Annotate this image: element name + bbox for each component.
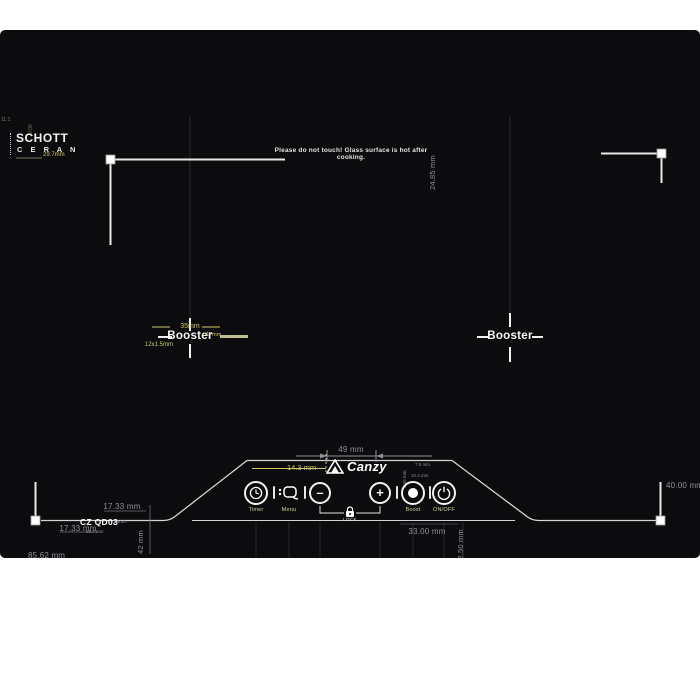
- dim-bottom-left-edge: 85.62 mm: [28, 551, 86, 558]
- schott-logo-bar: [10, 133, 11, 155]
- boost-dot-icon: [408, 488, 418, 498]
- edge-dim-fragment: 11.1: [1, 117, 10, 123]
- right-burner-tick-top: [509, 313, 511, 327]
- warning-text: Please do not touch! Glass surface is ho…: [262, 147, 440, 161]
- edge-dim-fragment-vertical: 0.00: [28, 107, 34, 134]
- dim-model-side-tiny: 3.5mm: [113, 519, 127, 524]
- menu-button: [277, 483, 301, 508]
- clock-icon: [248, 485, 264, 501]
- separator-2: [304, 486, 306, 499]
- dim-bottom-right-horizontal: 40.00 mm: [666, 481, 700, 490]
- dim-burner-coil: 12x1.5mm: [145, 342, 173, 348]
- lock-indicator: [344, 505, 356, 517]
- menu-pan-icon: [277, 483, 301, 503]
- dim-panel-tiny-1: 7.5 mm: [415, 462, 430, 467]
- menu-label: Menu: [274, 507, 304, 513]
- minus-symbol: –: [316, 485, 323, 500]
- power-icon: [436, 485, 452, 501]
- lock-label: LOCK: [340, 517, 360, 522]
- dim-top-right-vertical: 24.85 mm: [428, 115, 437, 190]
- timer-label: Timer: [241, 507, 271, 513]
- boost-label: Boost: [398, 507, 428, 513]
- dim-burner-right: 17mm: [206, 332, 221, 338]
- brand-name: Canzy: [347, 459, 387, 474]
- separator-4: [429, 486, 431, 499]
- right-burner-tick-right: [532, 336, 543, 338]
- right-burner-tick-bottom: [509, 347, 511, 362]
- dim-burner-width: 35mm: [173, 323, 207, 330]
- dim-model-under-tiny: 28.4 mm: [86, 529, 104, 534]
- dim-logo-width: 49 mm: [330, 445, 372, 454]
- technical-drawing-canvas: 11.1 0.00 SCHOTT C E R A N 29.7mm Please…: [0, 0, 700, 700]
- dim-panel-tiny-2: 10.4 mm: [411, 473, 429, 478]
- onoff-button: [432, 481, 456, 505]
- right-booster-label: Booster: [487, 330, 533, 342]
- separator-1: [273, 486, 275, 499]
- boost-button: [401, 481, 425, 505]
- timer-button: [244, 481, 268, 505]
- dim-panel-height-vertical: 52.50 mm: [456, 500, 465, 558]
- dim-corner-radius: 29.7mm: [43, 152, 65, 158]
- dim-bottom-left-vertical: 42 mm: [136, 506, 145, 554]
- dim-panel-bottom-width: 33.00 mm: [398, 527, 456, 536]
- cooktop-glass-panel: 11.1 0.00 SCHOTT C E R A N 29.7mm Please…: [0, 30, 700, 558]
- dim-logo-offset: 14.3 mm: [287, 463, 316, 472]
- canzy-logo: Canzy: [326, 459, 387, 474]
- plus-button: +: [369, 482, 391, 504]
- left-burner-tick-bottom: [189, 344, 191, 358]
- plus-symbol: +: [376, 485, 384, 500]
- left-burner-dash-right: [220, 335, 248, 338]
- dim-bottom-right-vertical: 30.00 mm: [616, 510, 625, 558]
- schott-logo-line1: SCHOTT: [16, 131, 78, 145]
- minus-button: –: [309, 482, 331, 504]
- dimension-lines-layer: [0, 30, 700, 558]
- canzy-triangle-icon: [326, 459, 344, 474]
- separator-3: [396, 486, 398, 499]
- schott-ceran-logo: SCHOTT C E R A N: [10, 131, 78, 154]
